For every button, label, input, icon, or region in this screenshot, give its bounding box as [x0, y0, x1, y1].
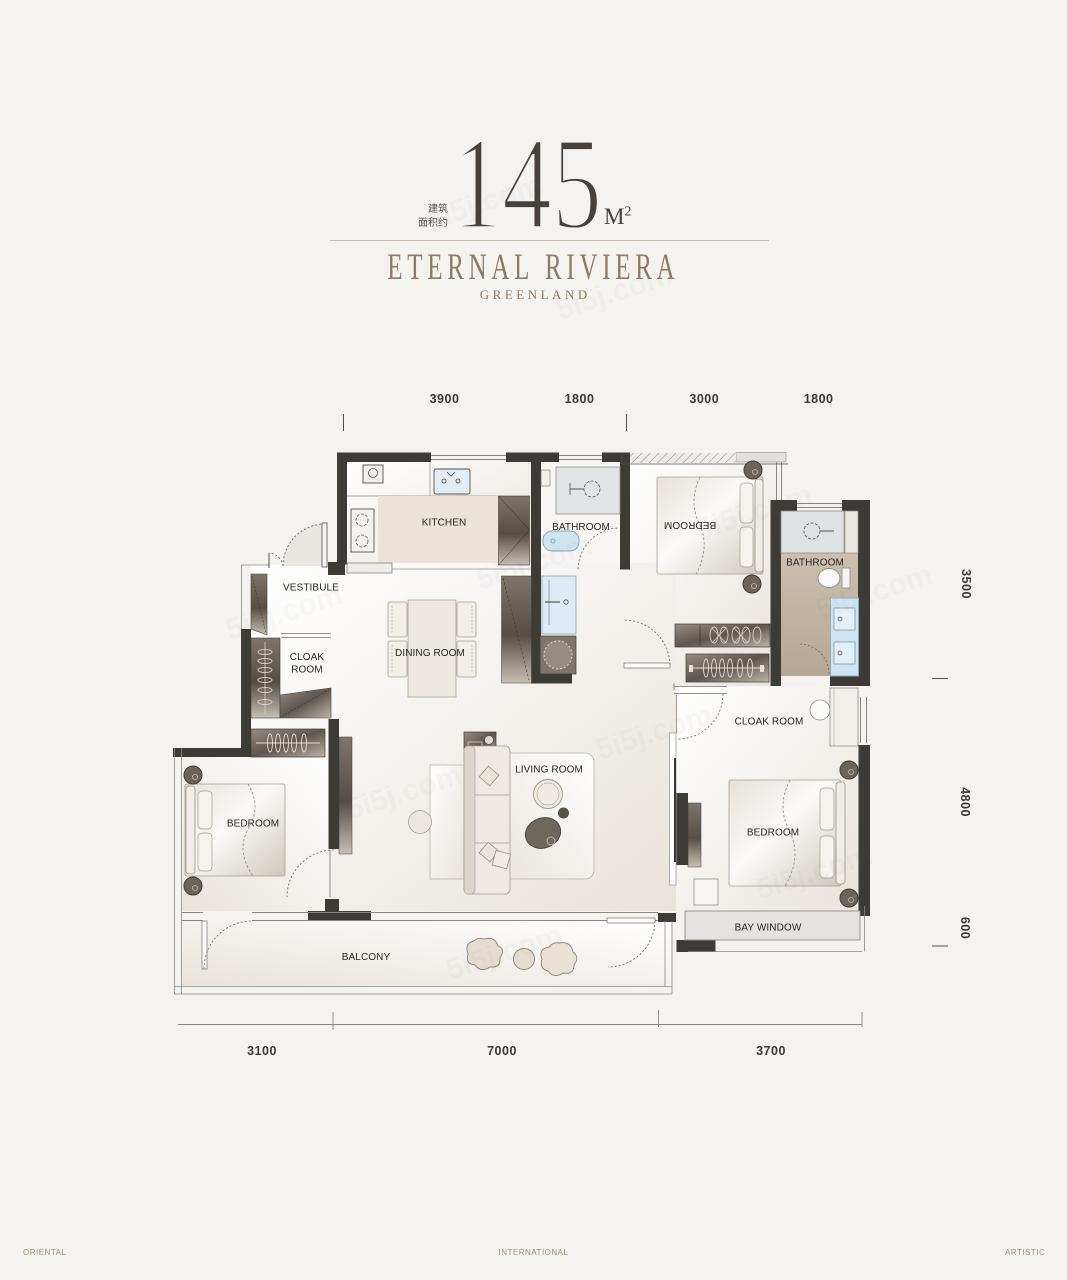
svg-text:5i5j.com: 5i5j.com [422, 168, 546, 236]
svg-text:1800: 1800 [565, 392, 595, 406]
svg-text:ROOM: ROOM [291, 665, 323, 676]
svg-text:3000: 3000 [689, 392, 719, 406]
svg-text:BATHROOM: BATHROOM [786, 558, 844, 569]
svg-text:5i5j.com: 5i5j.com [552, 258, 676, 326]
svg-text:7000: 7000 [487, 1044, 517, 1058]
svg-text:CLOAK: CLOAK [290, 652, 325, 663]
svg-text:3500: 3500 [959, 569, 973, 599]
svg-text:BAY WINDOW: BAY WINDOW [735, 923, 802, 934]
svg-text:KITCHEN: KITCHEN [422, 518, 467, 529]
svg-text:600: 600 [958, 917, 972, 939]
svg-text:3100: 3100 [247, 1044, 277, 1058]
svg-text:BALCONY: BALCONY [342, 952, 391, 963]
svg-text:CLOAK ROOM: CLOAK ROOM [735, 717, 804, 728]
svg-text:BEDROOM: BEDROOM [747, 828, 799, 839]
svg-text:1800: 1800 [804, 392, 834, 406]
svg-text:BEDROOM: BEDROOM [227, 819, 279, 830]
svg-text:3700: 3700 [756, 1044, 786, 1058]
svg-text:3900: 3900 [430, 392, 460, 406]
svg-text:DINING ROOM: DINING ROOM [395, 648, 465, 659]
svg-text:LIVING ROOM: LIVING ROOM [515, 765, 583, 776]
svg-text:4800: 4800 [958, 787, 972, 817]
